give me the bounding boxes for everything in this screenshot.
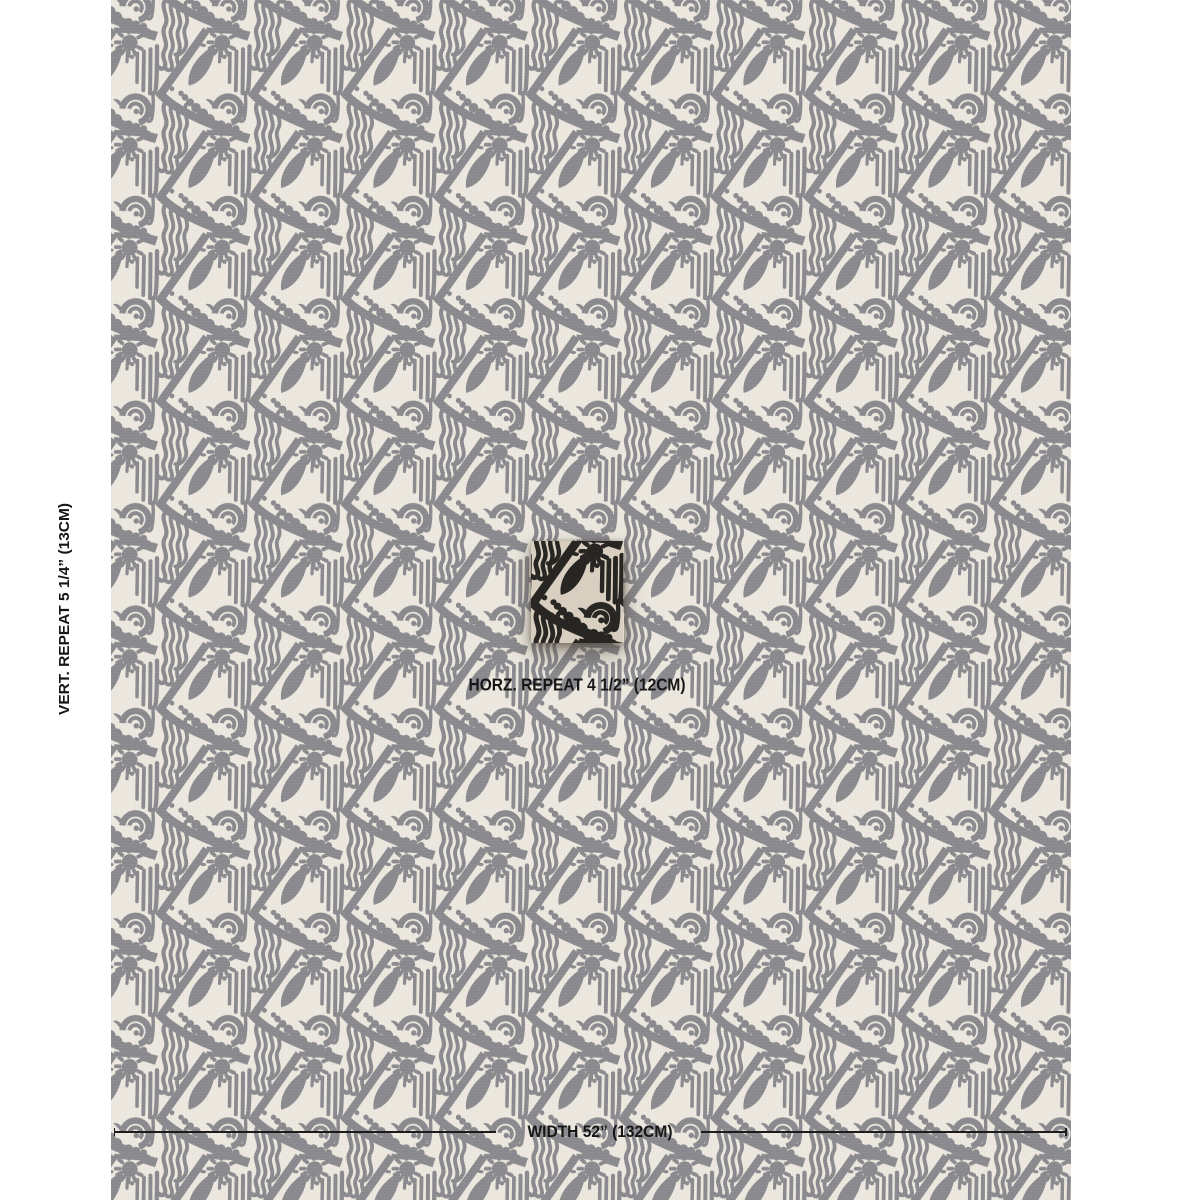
svg-text:WIDTH 52” (132CM): WIDTH 52” (132CM): [528, 1122, 673, 1141]
svg-text:HORZ. REPEAT 4 1/2” (12CM): HORZ. REPEAT 4 1/2” (12CM): [469, 675, 686, 695]
svg-text:VERT. REPEAT 5 1/4” (13CM): VERT. REPEAT 5 1/4” (13CM): [56, 503, 73, 715]
